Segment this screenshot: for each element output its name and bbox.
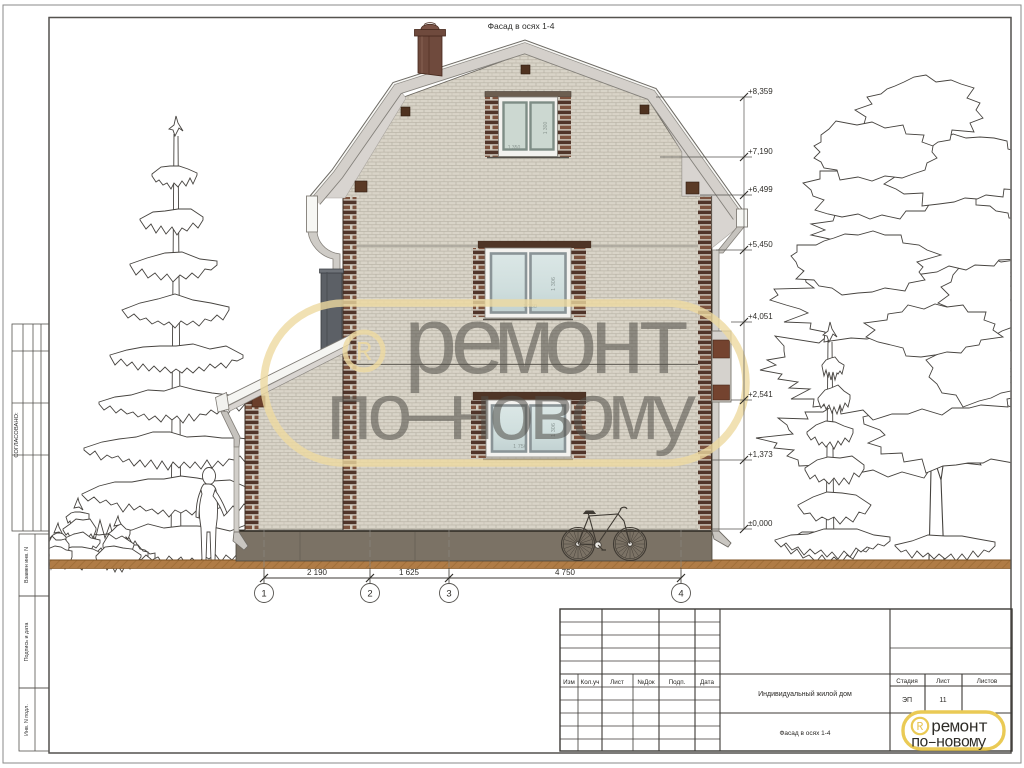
svg-text:1 300: 1 300 xyxy=(543,122,549,135)
svg-text:Подпись и дата: Подпись и дата xyxy=(24,623,30,662)
svg-text:Изм: Изм xyxy=(563,679,575,686)
svg-text:№Док: №Док xyxy=(637,679,655,686)
svg-text:1 350: 1 350 xyxy=(508,145,521,151)
svg-text:+7,190: +7,190 xyxy=(748,147,773,156)
svg-text:3: 3 xyxy=(446,589,451,600)
svg-text:1 625: 1 625 xyxy=(399,568,420,577)
svg-text:Фасад в осях 1-4: Фасад в осях 1-4 xyxy=(779,730,830,737)
svg-text:±0,000: ±0,000 xyxy=(748,519,773,528)
svg-text:+8,359: +8,359 xyxy=(748,87,773,96)
svg-text:2 190: 2 190 xyxy=(307,568,328,577)
svg-text:Лист: Лист xyxy=(936,678,950,685)
svg-text:ЭП: ЭП xyxy=(902,697,912,704)
svg-text:Подп.: Подп. xyxy=(669,679,686,686)
svg-text:Инв. N подл.: Инв. N подл. xyxy=(24,704,30,736)
svg-text:СОГЛАСОВАНО:: СОГЛАСОВАНО: xyxy=(14,412,20,458)
svg-text:Фасад в осях 1-4: Фасад в осях 1-4 xyxy=(488,21,555,31)
svg-text:+1,373: +1,373 xyxy=(748,450,773,459)
svg-text:Кол.уч: Кол.уч xyxy=(581,679,600,686)
svg-text:1 306: 1 306 xyxy=(551,277,557,291)
svg-text:+5,450: +5,450 xyxy=(748,240,773,249)
svg-text:Лист: Лист xyxy=(610,679,624,686)
svg-text:11: 11 xyxy=(939,697,946,704)
svg-text:по—новому: по—новому xyxy=(325,373,696,464)
svg-text:2: 2 xyxy=(367,589,372,600)
svg-text:4: 4 xyxy=(678,589,683,600)
svg-text:1: 1 xyxy=(261,589,266,600)
svg-text:+6,499: +6,499 xyxy=(748,185,773,194)
svg-text:Индивидуальный жилой дом: Индивидуальный жилой дом xyxy=(758,690,852,698)
svg-text:Дата: Дата xyxy=(700,679,714,686)
svg-text:R: R xyxy=(356,339,372,369)
svg-text:4 750: 4 750 xyxy=(555,568,576,577)
svg-text:+4,051: +4,051 xyxy=(748,312,773,321)
svg-text:+2,541: +2,541 xyxy=(748,390,773,399)
svg-text:Стадия: Стадия xyxy=(896,678,917,685)
svg-text:Листов: Листов xyxy=(977,678,998,685)
svg-text:Взамен инв. N: Взамен инв. N xyxy=(24,547,30,583)
svg-text:по–новому: по–новому xyxy=(911,734,986,752)
svg-text:R: R xyxy=(917,721,924,734)
